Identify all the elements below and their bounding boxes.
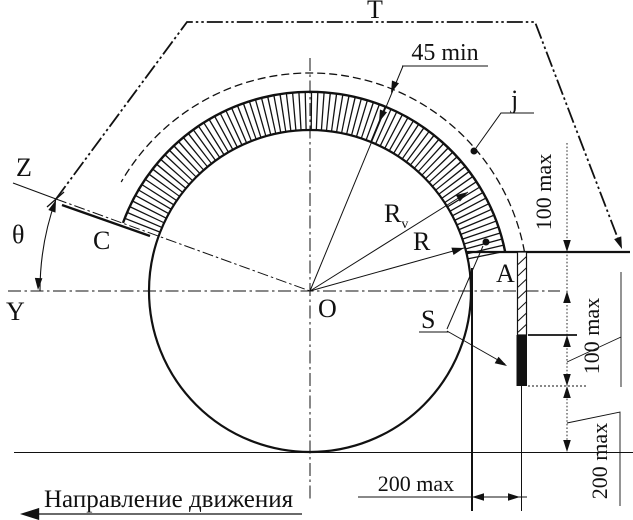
radius-arrowhead-icon (451, 244, 465, 255)
outer-radius-label: Rv (384, 199, 408, 232)
center-label: O (318, 294, 337, 323)
z-axis-extension (13, 183, 56, 199)
bottom-dimension-label: 200 max (378, 471, 454, 496)
radius-line (310, 248, 464, 291)
depth-min-label: 45 min (411, 40, 478, 66)
clearance-label: j (510, 85, 518, 114)
dimension-arrowhead-icon (563, 291, 571, 303)
y-axis-label: Y (6, 297, 25, 326)
clearance-leader (476, 113, 534, 148)
mud-flap-bar (517, 335, 528, 386)
radius-label: R (413, 227, 431, 256)
dimension-arrowhead-icon (563, 386, 571, 398)
flap-upper-strip (518, 252, 527, 335)
dimension-arrowhead-icon (563, 335, 571, 347)
flap-arrowhead-icon (495, 357, 509, 370)
theta-arrowhead-icon (34, 278, 42, 290)
top-plane-label: T (367, 0, 383, 24)
direction-arrowhead-icon (20, 508, 39, 520)
dimension-arrowhead-icon (472, 493, 484, 501)
middle-right-dimension-label: 100 max (579, 298, 604, 374)
tread-band-outer-arc (123, 92, 505, 252)
dimension-arrowhead-icon (563, 374, 571, 386)
dimension-arrowhead-icon (508, 493, 520, 501)
theta-label: θ (12, 220, 24, 249)
clearance-dot-icon (471, 148, 478, 155)
drawing-sheet: T Z θ Y C O A S j R Rv 45 min 100 max 10… (0, 0, 633, 520)
lower-right-dimension-label: 200 max (587, 423, 612, 499)
upper-right-dimension-label: 100 max (531, 154, 556, 230)
point-c-label: C (93, 226, 110, 255)
z-axis-label: Z (16, 153, 32, 182)
dimension-arrowhead-icon (563, 240, 571, 252)
flap-dot-icon (483, 239, 490, 246)
flap-leader-upper (447, 246, 483, 329)
point-a-label: A (496, 259, 515, 288)
envelope-arrowhead-icon (614, 236, 625, 250)
flap-label: S (421, 305, 435, 334)
theta-angle-arc (40, 199, 56, 291)
dimension-arrowhead-icon (563, 440, 571, 452)
figure-canvas: T Z θ Y C O A S j R Rv 45 min 100 max 10… (0, 0, 633, 520)
direction-caption: Направление движения (44, 486, 294, 513)
tread-band-hatch (141, 111, 487, 256)
